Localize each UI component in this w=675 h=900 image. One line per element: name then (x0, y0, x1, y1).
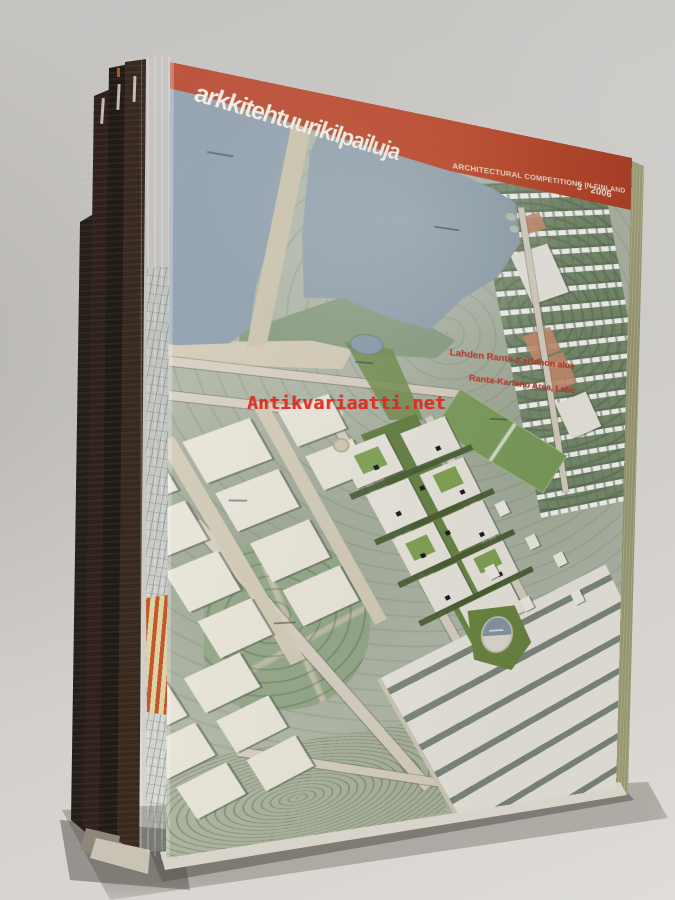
magazine-cover: Lahden Ranta-Kartanon alue Ranta-Kartano… (166, 62, 632, 858)
watermark-text: Antikvariaatti.net (247, 393, 446, 414)
photo-scene: Lahden Ranta-Kartanon alue Ranta-Kartano… (0, 0, 675, 900)
spine-issue-mark (117, 68, 120, 77)
cover-gloss-sheen (166, 62, 632, 858)
